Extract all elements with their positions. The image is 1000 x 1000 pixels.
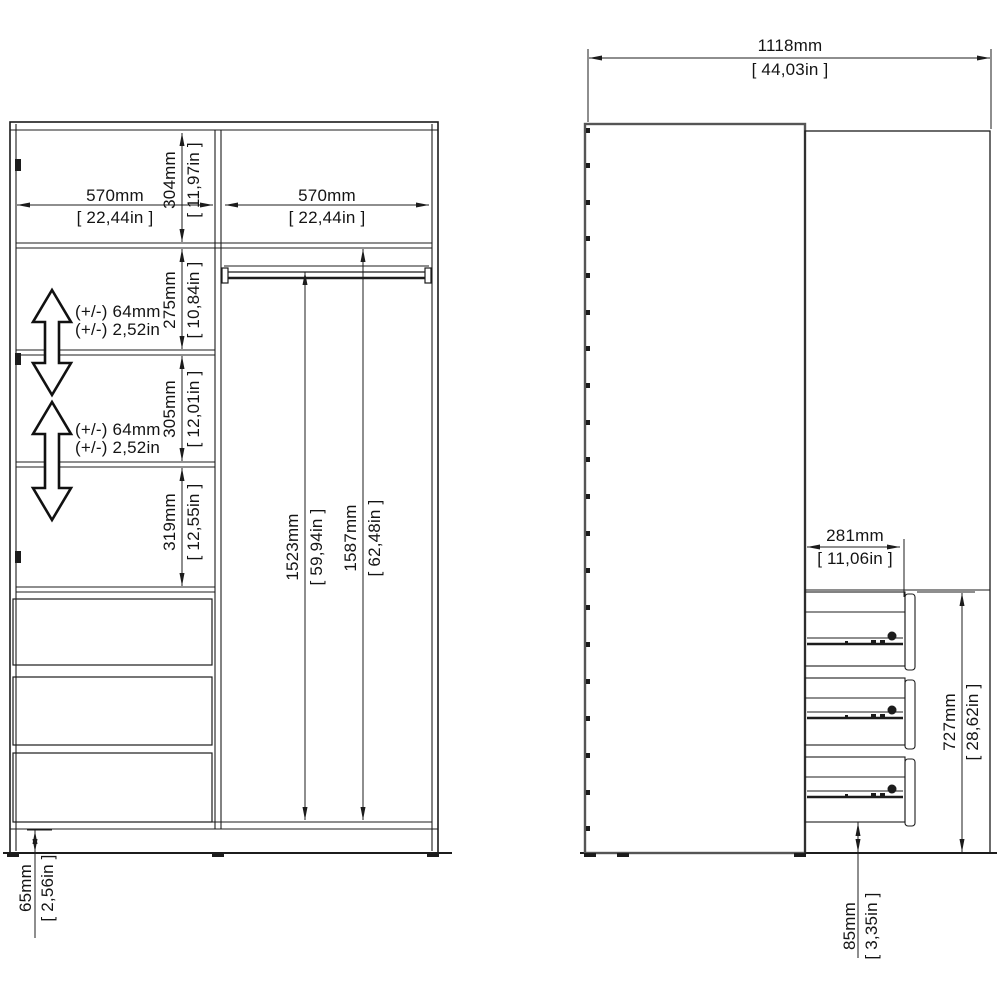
dim-label-85-mm: 85mm <box>840 902 860 950</box>
adjust-arrow-2 <box>33 402 71 520</box>
hinge-mark <box>15 353 21 365</box>
dim-label-319-in: [ 12,55in ] <box>184 484 204 561</box>
hanging-rail <box>222 266 431 283</box>
dim-label-1523-mm: 1523mm <box>283 513 303 580</box>
rail-end-cap-left <box>222 268 228 283</box>
dim-label-305-mm: 305mm <box>160 380 180 438</box>
dim-label-281-in: [ 11,06in ] <box>817 549 893 569</box>
dim-label-85-in: [ 3,35in ] <box>862 892 882 959</box>
dim-label-727-in: [ 28,62in ] <box>963 684 983 761</box>
dim-label-1587-in: [ 62,48in ] <box>365 500 385 577</box>
dim-label-65-mm: 65mm <box>16 864 36 912</box>
drawer-front-profile <box>905 759 915 826</box>
dim-label-275-mm: 275mm <box>160 271 180 329</box>
drawer-front-profile <box>905 680 915 749</box>
front-drawer-1 <box>13 599 212 665</box>
dim-label-570-left-mm: 570mm <box>86 186 144 206</box>
dim-label-1523-in: [ 59,94in ] <box>307 509 327 586</box>
side-door-panel <box>585 124 805 853</box>
rail-end-cap-right <box>425 268 431 283</box>
adjust1-label-mm: (+/-) 64mm <box>75 302 161 322</box>
dim-label-727-mm: 727mm <box>940 693 960 751</box>
dim-label-281-mm: 281mm <box>826 526 884 546</box>
dim-label-1587-mm: 1587mm <box>341 504 361 571</box>
shelf-adjust-arrows <box>33 290 71 520</box>
dim-label-65-in: [ 2,56in ] <box>38 854 58 921</box>
dim-label-570-left-in: [ 22,44in ] <box>77 208 154 228</box>
dim-label-304-in: [ 11,97in ] <box>184 142 204 218</box>
drawer-front-profile <box>905 594 915 670</box>
adjust1-label-in: (+/-) 2,52in <box>75 320 160 340</box>
dim-label-319-mm: 319mm <box>160 493 180 551</box>
dim-label-570-right-in: [ 22,44in ] <box>289 208 366 228</box>
hinge-mark <box>15 159 21 171</box>
door-edge-marks <box>586 128 590 831</box>
adjust2-label-mm: (+/-) 64mm <box>75 420 161 440</box>
side-drawer-2 <box>805 678 915 749</box>
front-carcass-outline <box>10 122 438 853</box>
technical-drawing-page: 570mm [ 22,44in ] 570mm [ 22,44in ] 304m… <box>0 0 1000 1000</box>
dim-label-275-in: [ 10,84in ] <box>184 262 204 339</box>
dim-label-305-in: [ 12,01in ] <box>184 371 204 448</box>
dim-label-1118-mm: 1118mm <box>758 36 823 56</box>
front-drawer-3 <box>13 753 212 822</box>
hinge-mark <box>15 551 21 563</box>
dim-label-570-right-mm: 570mm <box>298 186 356 206</box>
adjust2-label-in: (+/-) 2,52in <box>75 438 160 458</box>
front-drawer-fronts <box>13 599 212 822</box>
side-drawer-3 <box>805 757 915 826</box>
side-view <box>580 49 997 958</box>
dim-label-304-mm: 304mm <box>160 151 180 209</box>
dim-label-1118-in: [ 44,03in ] <box>752 60 829 80</box>
side-drawer-1 <box>805 592 915 670</box>
side-drawers <box>805 592 915 826</box>
adjust-arrow-1 <box>33 290 71 395</box>
drawing-linework <box>0 0 1000 1000</box>
side-dimensions <box>588 49 991 958</box>
front-drawer-2 <box>13 677 212 745</box>
